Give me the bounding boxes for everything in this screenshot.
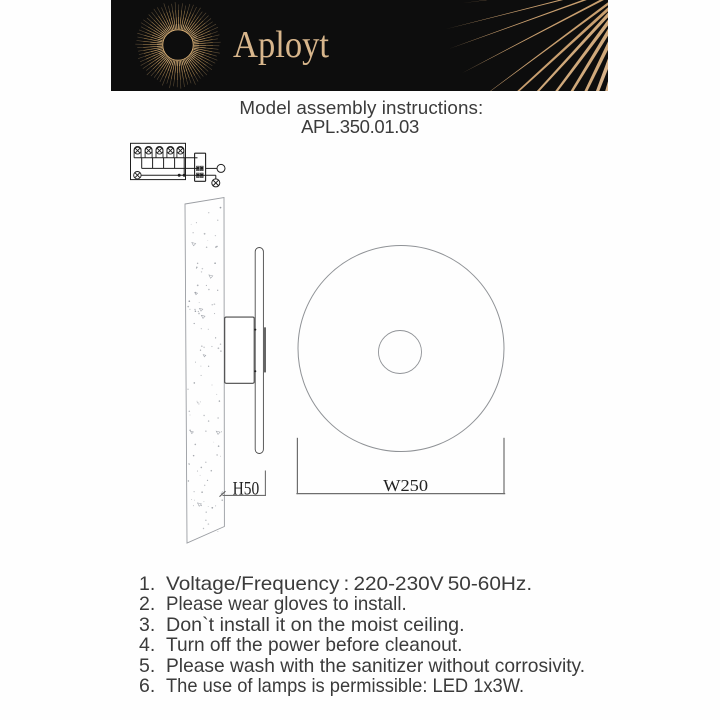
svg-text:W250: W250	[383, 476, 428, 495]
svg-text:H50: H50	[233, 480, 260, 500]
svg-text:Aployt: Aployt	[233, 24, 329, 65]
